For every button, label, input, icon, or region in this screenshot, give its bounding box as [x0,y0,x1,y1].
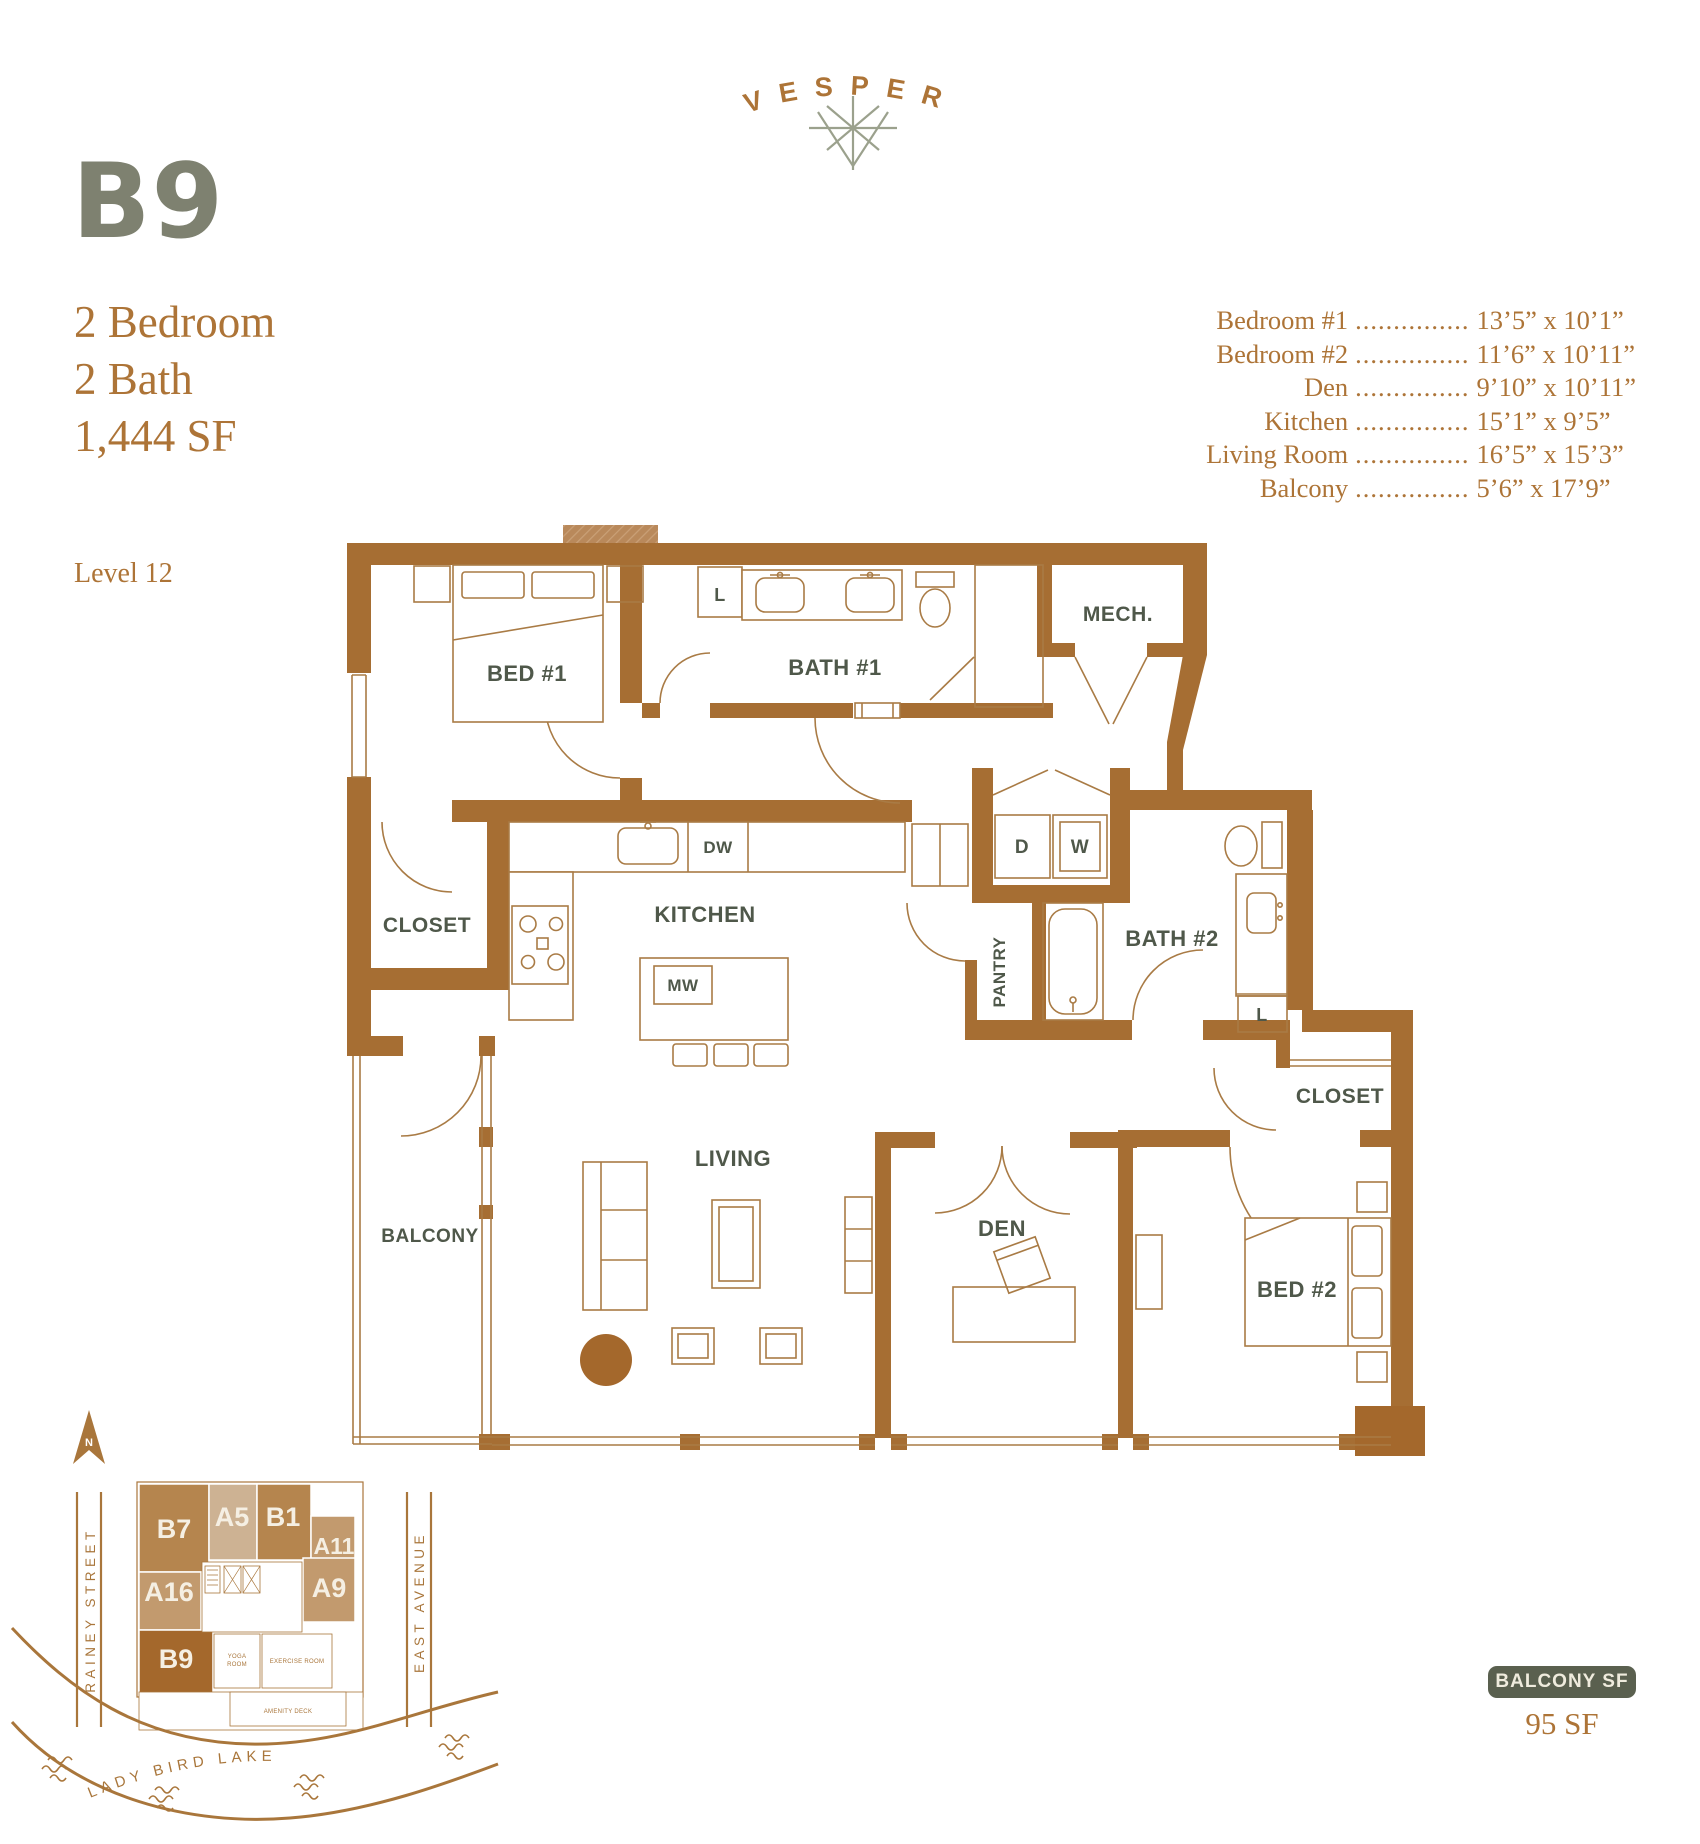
north-label: N [85,1437,93,1449]
unit-code: B9 [72,148,224,256]
label-closet1: CLOSET [383,914,471,937]
floorplan-drawing: BED #1 L BATH #1 MECH. CLOSET KITCHEN DW… [340,515,1430,1460]
label-dw: DW [703,838,733,857]
north-arrow-icon: N [73,1410,105,1464]
site-unit-a9: A9 [312,1573,347,1603]
site-label-yoga-2: ROOM [227,1662,247,1668]
label-dryer: D [1015,837,1029,858]
wave-icon [439,1735,469,1759]
unit-specs: 2 Bedroom 2 Bath 1,444 SF [74,294,275,465]
brand-wordmark: VESPER [740,70,962,118]
fixtures-and-furniture [352,565,1391,1445]
site-label-exercise: EXERCISE ROOM [270,1659,325,1665]
label-linen2: L [1256,1005,1268,1025]
building-key-plan: B7 A5 B1 A11 A16 A9 B9 YOGA ROOM EXERCIS… [137,1482,363,1730]
spec-bedrooms: 2 Bedroom [74,294,275,351]
label-linen1: L [714,585,726,605]
label-bed1: BED #1 [487,661,567,686]
label-den: DEN [978,1216,1026,1241]
site-unit-a11: A11 [314,1533,355,1559]
spec-baths: 2 Bath [74,351,275,408]
label-bath1: BATH #1 [788,655,882,680]
site-unit-b1: B1 [266,1502,301,1532]
street-label-rainey: RAINEY STREET [83,1527,98,1693]
site-label-yoga-1: YOGA [228,1654,247,1660]
label-pantry: PANTRY [990,936,1009,1007]
spec-area: 1,444 SF [74,408,275,465]
floorplan-sheet: VESPER B9 2 Bedroom 2 Bath 1,444 SF Leve… [0,0,1700,1844]
wave-icon [149,1787,179,1811]
label-living: LIVING [695,1146,771,1171]
compass-star-icon [809,96,897,170]
site-label-amenity-deck: AMENITY DECK [264,1709,313,1715]
label-bed2: BED #2 [1257,1277,1337,1302]
vesper-logo: VESPER [690,35,1010,185]
site-unit-a5: A5 [215,1502,250,1532]
balcony-sf-badge-label: BALCONY SF [1495,1671,1628,1693]
wave-icon [294,1775,324,1799]
pouf-rug [580,1334,632,1386]
balcony-sf-badge: BALCONY SF [1488,1666,1636,1698]
site-unit-b9-highlighted: B9 [159,1644,194,1674]
site-unit-a16: A16 [144,1577,194,1607]
label-mech: MECH. [1083,603,1153,626]
balcony-sf-value: 95 SF [1488,1706,1636,1742]
room-dimensions-list: Bedroom #1...............13’5” x 10’1” B… [1206,304,1636,505]
street-label-east-avenue: EAST AVENUE [412,1531,427,1673]
label-balcony: BALCONY [381,1226,478,1247]
label-mw: MW [667,976,699,995]
site-plan: N RAINEY STREET EAST AVENUE [10,1395,510,1835]
label-closet2: CLOSET [1296,1085,1384,1108]
label-bath2: BATH #2 [1125,926,1219,951]
site-unit-b7: B7 [157,1514,192,1544]
level-label: Level 12 [74,558,173,590]
structural-column [1355,1406,1425,1456]
label-kitchen: KITCHEN [654,902,755,927]
label-washer: W [1071,837,1089,858]
